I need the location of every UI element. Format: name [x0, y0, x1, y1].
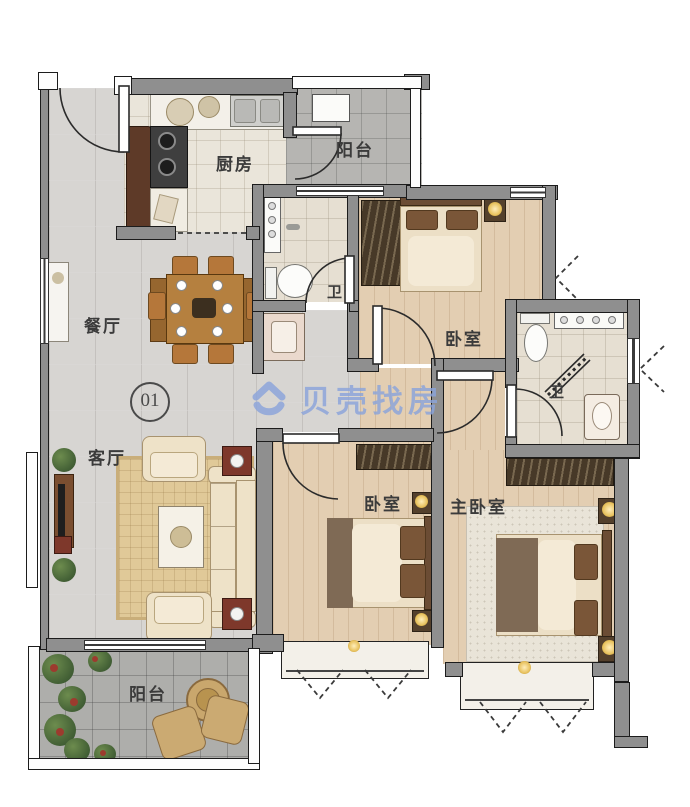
- bedroom-top-door-arc: [377, 308, 435, 366]
- room-label-bathroom-master: 卫: [549, 381, 564, 402]
- unit-number-badge: 01: [130, 382, 170, 422]
- room-label-balcony-bottom: 阳台: [129, 680, 167, 705]
- opening-arrow-bath-master: [640, 346, 664, 392]
- bath-master-door-leaf: [507, 385, 516, 437]
- room-label-living: 客厅: [88, 444, 126, 469]
- floorplan-canvas: 厨房 阳台 餐厅 客厅 阳台 卧室 卧室 主卧室 卫 卫 01 贝壳找房: [0, 0, 690, 807]
- balcony-door-arc: [295, 133, 341, 179]
- room-label-bedroom-top: 卧室: [445, 325, 483, 350]
- entry-door-leaf: [119, 86, 129, 152]
- bedroom-middle-door-arc: [283, 443, 338, 499]
- window-projection-arrow: [540, 702, 586, 732]
- window-projection-arrow: [365, 670, 411, 698]
- beike-shell-logo-icon: [248, 378, 290, 420]
- window-projection-arrow: [480, 702, 526, 732]
- watermark: 贝壳找房: [248, 376, 444, 421]
- bedroom-middle-door-leaf: [283, 434, 339, 443]
- master-bedroom-door-arc: [437, 378, 492, 433]
- room-label-bedroom-middle: 卧室: [364, 490, 402, 515]
- window-projection-arrow: [297, 670, 343, 698]
- master-bedroom-door-leaf: [437, 371, 493, 380]
- bedroom-top-door-leaf: [373, 306, 382, 364]
- opening-arrow-bedroom-top: [556, 256, 578, 300]
- bath-main-door-leaf: [345, 256, 354, 303]
- entry-door-arc: [60, 88, 124, 152]
- room-label-kitchen: 厨房: [216, 150, 254, 175]
- watermark-text: 贝壳找房: [300, 376, 444, 421]
- room-label-dining: 餐厅: [84, 312, 122, 337]
- room-label-balcony-top: 阳台: [336, 136, 374, 161]
- room-label-bathroom-main: 卫: [327, 281, 342, 302]
- room-label-master-bedroom: 主卧室: [450, 493, 507, 518]
- balcony-door-leaf: [293, 127, 341, 135]
